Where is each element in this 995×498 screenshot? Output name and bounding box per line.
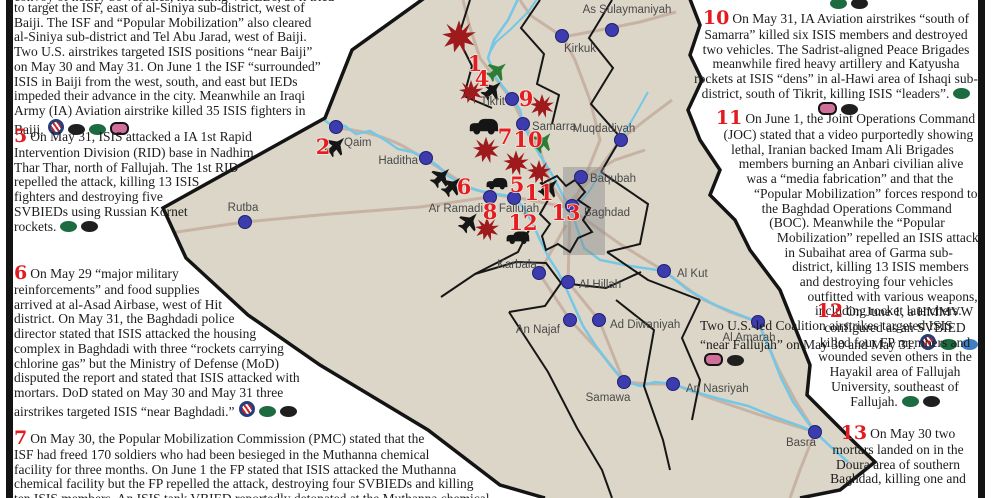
clipped-icons-top-right [826, 0, 868, 12]
city-dot [615, 134, 628, 147]
green-marker-icon [902, 396, 919, 407]
city-label: Samawa [586, 392, 631, 404]
event-text: On June 1, a HMMVW configured as an SVBI… [818, 304, 973, 409]
event-number: 6 [14, 262, 27, 284]
city-dot [618, 376, 631, 389]
city-dot [575, 171, 588, 184]
event-number-marker: 11 [524, 180, 553, 205]
green-marker-icon [953, 88, 970, 99]
event-number: 10 [703, 7, 729, 29]
black-marker-icon [923, 396, 940, 407]
event-number-marker: 13 [551, 200, 580, 225]
us-marker-icon [239, 401, 255, 417]
event-block-12: 12On June 1, a HMMVW configured as an SV… [812, 302, 978, 409]
event-block-13: 13On May 30 two mortars landed on in the… [820, 424, 976, 487]
event-block-6: 6On May 29 “major military reinforcement… [14, 264, 328, 419]
city-label: Tikrit [481, 96, 506, 108]
event-number: 13 [841, 422, 867, 444]
city-label: Haditha [378, 155, 418, 167]
city-label: As Sulaymaniyah [583, 4, 672, 16]
event-number: 11 [716, 107, 742, 129]
event-number-marker: 6 [457, 174, 472, 199]
city-label: Qaim [344, 137, 371, 149]
city-label: Basra [786, 437, 817, 449]
event-number-marker: 4 [475, 66, 490, 91]
pink-marker-icon [704, 353, 723, 366]
event-text: On May 31, IA Aviation airstrikes “south… [694, 11, 978, 101]
green-marker-icon [60, 221, 77, 232]
situation-map-page: QaimHadithaRutbaAr RamadiFallujahBaghdad… [0, 0, 995, 498]
event-text: to target the ISF, east of al-Siniya sub… [14, 0, 321, 137]
event-icons [56, 219, 98, 234]
city-label: Al Hillah [579, 279, 621, 291]
city-label: Ad Diwaniyah [610, 319, 680, 331]
city-dot [593, 314, 606, 327]
event-number-marker: 10 [513, 127, 542, 152]
black-marker-icon [851, 0, 868, 9]
black-marker-icon [81, 221, 98, 232]
event-icons [898, 394, 940, 409]
green-marker-icon [259, 406, 276, 417]
city-label: An Najaf [516, 324, 561, 336]
event-number-marker: 5 [510, 172, 525, 197]
event-number-marker: 12 [508, 210, 537, 235]
city-dot [420, 152, 433, 165]
event-icons [235, 404, 297, 419]
event-number-marker: 9 [519, 86, 534, 111]
black-marker-icon [727, 355, 744, 366]
city-label: An Nasriyah [686, 383, 749, 395]
city-dot [667, 378, 680, 391]
event-number: 7 [14, 427, 27, 449]
map-frame-left [6, 0, 13, 498]
city-dot [658, 265, 671, 278]
city-dot [562, 276, 575, 289]
city-dot [564, 314, 577, 327]
black-marker-icon [280, 406, 297, 417]
event-number: 12 [817, 300, 843, 322]
city-label: Baqubah [590, 173, 636, 185]
city-dot [606, 24, 619, 37]
city-label: Ar Ramadi [429, 203, 483, 215]
city-dot [556, 30, 569, 43]
event-text: On May 30, the Popular Mobilization Comm… [14, 431, 490, 498]
city-label: Karbala [497, 259, 537, 271]
city-label: Muqdadiyah [573, 123, 636, 135]
event-block-7: 7On May 30, the Popular Mobilization Com… [14, 429, 502, 498]
city-dot [506, 93, 519, 106]
green-marker-icon [830, 0, 847, 9]
event-block-5: 5On May 31, ISIS attacked a IA 1st Rapid… [14, 127, 326, 239]
event-number-marker: 7 [498, 124, 513, 149]
city-label: Baghdad [584, 207, 630, 219]
event-number: 5 [14, 125, 27, 147]
event-block-10: 10On May 31, IA Aviation airstrikes “sou… [694, 9, 978, 117]
city-label: Kirkuk [564, 43, 596, 55]
city-dot [330, 121, 343, 134]
event-block-4: to target the ISF, east of al-Siniya sub… [14, 1, 327, 137]
event-number-marker: 8 [483, 199, 498, 224]
